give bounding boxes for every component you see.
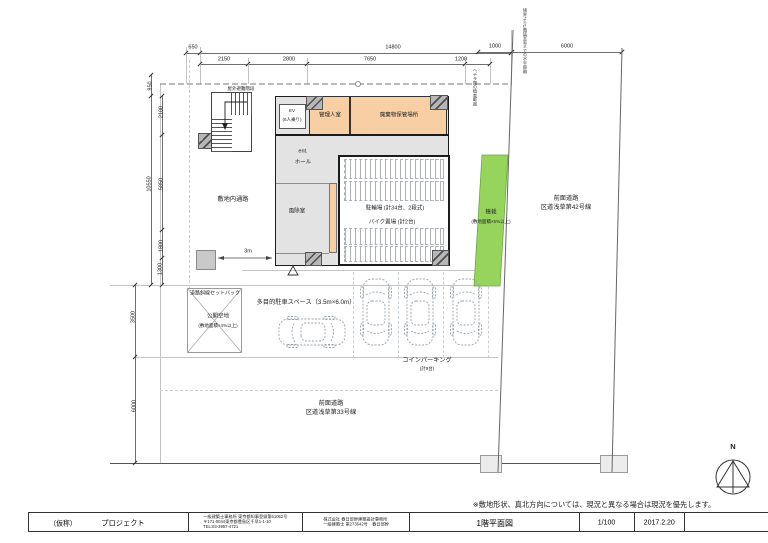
- label-road-setback: 道路斜線セットバック: [190, 288, 240, 296]
- bollard-square: [196, 250, 216, 270]
- dim-ext: [511, 30, 512, 84]
- label-front-road-south-2: 区道浅草第33号線: [306, 406, 356, 415]
- hatch-square: [305, 252, 322, 266]
- dim-label: 10550: [146, 176, 152, 191]
- label-coin-parking: コインパーキング: [402, 354, 451, 363]
- label-planting-sub: (敷地面積×5%以上): [471, 218, 510, 225]
- label-front-road-east-1: 前面道路: [554, 192, 579, 201]
- wall-line: [275, 134, 449, 136]
- dim-label: 6000: [561, 43, 573, 49]
- dim-label: 3500: [130, 311, 136, 323]
- title-cell-project: （仮称） プロジェクト: [28, 513, 188, 531]
- dim-label: 5850: [158, 178, 164, 190]
- car-outline: [451, 279, 482, 345]
- dim-label: 6000: [131, 400, 137, 412]
- compass-label: N: [730, 443, 735, 451]
- outdoor-stair: [211, 92, 252, 152]
- site-boundary-east: [498, 30, 513, 472]
- north-arrow-icon: [716, 460, 750, 494]
- car-outline: [405, 279, 436, 345]
- parking-stall-line: [488, 272, 489, 358]
- label-multipurpose-parking: 多目的駐車スペース（3.5m×6.0m）: [257, 296, 356, 305]
- drawing-scale: 1/100: [598, 518, 616, 526]
- label-ev-sub: (6人乗り): [282, 116, 301, 123]
- label-public-open-space: 公開空地: [207, 311, 229, 319]
- title-cell-drawing-title: 1階平面図: [409, 513, 579, 531]
- guide-line: [110, 285, 500, 286]
- title-cell-company: 株式会社 春日部幹建築設計事務所 一級建築士 第273642号 春日部幹: [302, 513, 409, 531]
- road-box: [600, 455, 628, 473]
- dim-label: 14800: [385, 44, 400, 50]
- parking-stall-line: [398, 272, 399, 358]
- dim-line-top2: [200, 64, 490, 65]
- label-manager-room: 管理人室: [319, 110, 341, 118]
- label-ev: EV: [289, 109, 295, 114]
- bike-rack: [344, 159, 444, 179]
- dim-label: 1800: [158, 240, 164, 252]
- dim-label: 1000: [489, 43, 501, 49]
- drawing-sheet: 650 14800 2150 2800 7650 1200 1000 6000 …: [0, 0, 768, 543]
- note-boundary-distance: 境界より1階居室窓までの水平距離: [521, 8, 527, 73]
- drawing-date: 2017.2.20: [644, 518, 675, 526]
- bike-rack: [344, 181, 444, 201]
- title-cell-scale: 1/100: [579, 513, 634, 531]
- note-planting-range: ヘデラ類の植栽範囲: [471, 68, 477, 106]
- car-outline: [279, 317, 345, 348]
- road-box: [480, 455, 502, 473]
- title-cell-empty: [684, 513, 768, 531]
- dim-label: 2800: [283, 56, 295, 62]
- dim-label-3m: 3m: [244, 248, 252, 254]
- dim-tick: [620, 50, 625, 55]
- label-outdoor-stair: 屋外避難階段: [228, 85, 255, 92]
- label-coin-parking-sub: (計9台): [420, 365, 435, 372]
- dim-label: 950: [147, 81, 153, 90]
- guide-line: [160, 390, 498, 391]
- dim-line-top-right: [478, 52, 622, 53]
- wall-line: [276, 183, 329, 184]
- label-public-open-space-sub: (敷地面積×4%以上): [198, 322, 237, 329]
- bike-rack: [344, 228, 444, 245]
- title-cell-office: 一級建築士事務所 東京都知事登録第61062号 〒171-0044東京都豊島区千…: [188, 513, 302, 531]
- windbreak-wall-strip: [329, 183, 337, 253]
- guide-line: [242, 270, 498, 271]
- car-outline: [361, 279, 392, 345]
- drawing-title: 1階平面図: [476, 516, 512, 528]
- project-name: プロジェクト: [101, 517, 144, 528]
- stair-treads-lower: [212, 117, 232, 152]
- label-ent: ent.: [298, 148, 307, 154]
- label-site-passage: 敷地内通路: [218, 193, 249, 202]
- label-bike-parking: バイク置場 (計2台): [369, 217, 416, 225]
- company-info: 株式会社 春日部幹建築設計事務所 一級建築士 第273642号 春日部幹: [323, 517, 389, 527]
- hatch-square: [432, 250, 449, 266]
- boundary-marker: [356, 82, 361, 87]
- dim-label: 1300: [157, 263, 163, 275]
- dim-label: 2100: [158, 106, 164, 118]
- label-planting: 植栽: [486, 207, 497, 215]
- label-waste-storage: 廃棄物保管場所: [380, 110, 419, 118]
- grid-line: [189, 60, 190, 288]
- hatch-square: [306, 96, 323, 110]
- title-cell-date: 2017.2.20: [634, 513, 684, 531]
- parking-stall-line: [443, 272, 444, 358]
- dim-label: 650: [188, 44, 197, 50]
- sheet-note: ※敷地形状、真北方向については、現況と異なる場合は現況を優先します。: [473, 499, 716, 510]
- dim-label: 2150: [218, 56, 230, 62]
- public-open-space-box: [187, 288, 242, 353]
- label-windbreak-room: 風除室: [289, 206, 306, 214]
- parking-stall-line: [353, 272, 354, 358]
- stair-treads-upper: [231, 93, 252, 115]
- project-prefix: （仮称）: [49, 517, 76, 527]
- plan-linework-layer: [0, 0, 768, 543]
- hatch-square: [430, 95, 448, 110]
- label-bicycle-parking: 駐輪場 (計34台、2段式): [366, 203, 424, 211]
- label-hall: ホール: [295, 157, 312, 165]
- dim-label: 1200: [455, 56, 467, 62]
- road-edge-east: [612, 48, 622, 472]
- label-front-road-south-1: 前面道路: [319, 397, 344, 406]
- dim-line-top1: [186, 53, 512, 54]
- dim-label: 7650: [364, 56, 376, 62]
- office-info: 一級建築士事務所 東京都知事登録第61062号 〒171-0044東京都豊島区千…: [203, 514, 287, 529]
- bike-rack: [344, 246, 444, 262]
- road-edge-south: [110, 463, 628, 464]
- label-front-road-east-2: 区道浅草第42号線: [541, 201, 591, 210]
- title-block: （仮称） プロジェクト 一級建築士事務所 東京都知事登録第61062号 〒171…: [28, 512, 768, 532]
